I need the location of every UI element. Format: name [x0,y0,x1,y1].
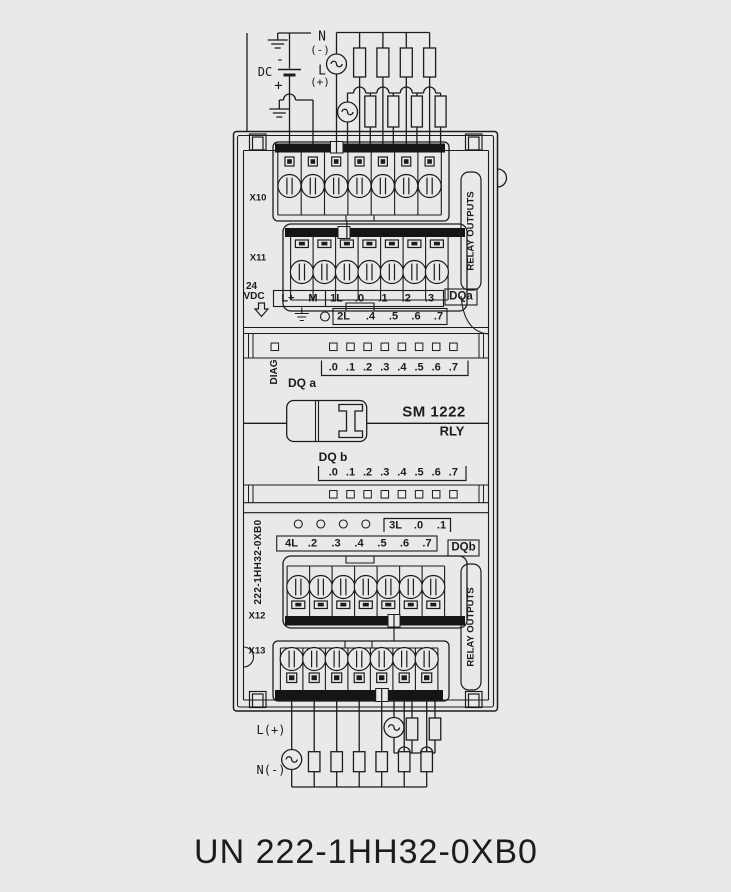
channel-label: .4 [397,468,406,479]
ac-source-1l [327,54,347,74]
diag-label: DIAG [270,359,280,384]
load-resistor [365,96,376,127]
screw-terminal [325,648,348,683]
channel-label: .0 [329,468,338,479]
load-resistor [411,96,422,127]
group-label-dqa: DQa [449,291,473,303]
wire-label-n-minus: N(-) [257,764,286,776]
led-band-dqb [330,491,458,499]
screw-terminal [370,648,393,683]
screw-terminal [287,576,310,609]
terminal-label: .6 [400,538,409,549]
terminal-label: L+ [281,293,294,304]
load-resistor [421,752,433,772]
ground-symbol-lower [269,109,289,117]
terminal-label: .3 [425,293,434,304]
channel-label: .3 [380,363,389,374]
screw-terminal [335,240,358,284]
terminal-label: .1 [378,293,387,304]
terminal-label: .3 [331,538,340,549]
load-resistor [376,752,388,772]
terminal-label: 1L [330,293,343,304]
channel-label: .1 [346,468,355,479]
screw-terminal [425,240,448,284]
wiring-diagram-page: N (-) L (+) DC - + X10 X11 24 VDC L+ M 1… [0,0,731,892]
group-label-dqb: DQb [451,542,475,554]
channel-label: .2 [363,468,372,479]
load-resistor [308,752,320,772]
channel-label: .5 [415,363,424,374]
terminal-label: .7 [434,311,443,322]
terminal-label: .2 [402,293,411,304]
channel-label: .7 [449,468,458,479]
terminal-label: .6 [411,311,420,322]
connector-label-x12: X12 [249,611,266,621]
bottom-wiring [282,695,441,787]
terminal-block-x12 [283,556,467,641]
channel-label: .2 [363,363,372,374]
product-name: SM 1222 [402,405,466,420]
terminal-label: 2L [337,311,350,322]
no-connection-mark [321,312,330,321]
screw-terminal [332,576,355,609]
load-resistor [435,96,446,127]
channel-label: .7 [449,363,458,374]
terminal-block-x13 [273,641,449,702]
terminal-label: .4 [354,538,363,549]
terminal-label: M [308,293,317,304]
terminal-label: .0 [414,520,423,531]
connector-label-x13: X13 [249,646,266,656]
screw-terminal [354,576,377,609]
group-heading-dq-b: DQ b [319,451,348,463]
connector-label-x10: X10 [250,193,267,203]
screw-terminal [377,576,400,609]
load-resistor [331,752,343,772]
screw-terminal [358,240,381,284]
screw-terminal [313,240,336,284]
relay-outputs-label-top: RELAY OUTPUTS [466,191,476,270]
load-resistor [353,752,365,772]
channel-label: .5 [415,468,424,479]
screw-terminal [348,157,371,198]
diag-led [271,343,279,351]
relay-outputs-label-bottom: RELAY OUTPUTS [466,587,476,666]
channel-label: .6 [432,363,441,374]
screw-terminal [418,157,441,198]
terminal-label: .7 [422,538,431,549]
screw-terminal [380,240,403,284]
terminal-label: .4 [366,311,375,322]
wiring-diagram-artwork [0,0,731,892]
screw-terminal [301,157,324,198]
screw-terminal [280,648,303,683]
screw-terminal [415,648,438,683]
screw-terminal [422,576,445,609]
screw-terminal [290,240,313,284]
screw-terminal [325,157,348,198]
down-arrow-icon [255,303,268,317]
terminal-label: .2 [308,538,317,549]
load-resistor [400,48,412,77]
ground-terminal-mark [295,314,309,321]
terminal-label: 3L [389,520,402,531]
order-number: 222-1HH32-0XB0 [254,519,264,604]
screw-terminal [395,157,418,198]
terminal-label: .5 [377,538,386,549]
load-resistor [388,96,399,127]
load-resistor [377,48,389,77]
screw-terminal [348,648,371,683]
terminal-label: 4L [285,538,298,549]
load-resistor [429,718,441,740]
center-emblem [287,401,367,442]
screw-terminal [309,576,332,609]
supply-unit-label: VDC [243,292,264,302]
ac-source-3l [384,718,404,738]
channel-label: .6 [432,468,441,479]
screw-terminal [303,648,326,683]
load-resistor [424,48,436,77]
channel-label: .1 [346,363,355,374]
channel-label: .3 [380,468,389,479]
connector-label-x11: X11 [250,253,266,263]
wire-label-n-polarity: (-) [310,44,330,55]
screw-terminal [371,157,394,198]
din-clip-bump [498,169,507,187]
terminal-label: .0 [355,293,364,304]
channel-label: .0 [329,363,338,374]
wire-label-l-polarity: (+) [310,77,330,88]
terminal-label: .5 [389,311,398,322]
ac-source-2l [338,102,358,122]
load-resistor [398,752,410,772]
channel-label: .4 [397,363,406,374]
wire-label-n: N [318,31,326,44]
battery-plus-label: + [274,79,282,93]
terminal-block-x10 [273,142,449,222]
group-heading-dq-a: DQ a [288,377,316,389]
screw-terminal [393,648,416,683]
screw-terminal [278,157,301,198]
led-band-dqa [271,343,457,351]
load-resistor [354,48,366,77]
dc-supply-label: DC [258,66,272,78]
product-type: RLY [440,424,465,437]
battery-minus-label: - [276,53,284,67]
load-resistor [406,718,418,740]
wire-label-l-plus: L(+) [257,724,286,736]
page-title: UN 222-1HH32-0XB0 [194,835,538,869]
screw-terminal [403,240,426,284]
screw-terminal [399,576,422,609]
terminal-label: .1 [437,520,446,531]
ground-symbol-top [268,40,288,48]
